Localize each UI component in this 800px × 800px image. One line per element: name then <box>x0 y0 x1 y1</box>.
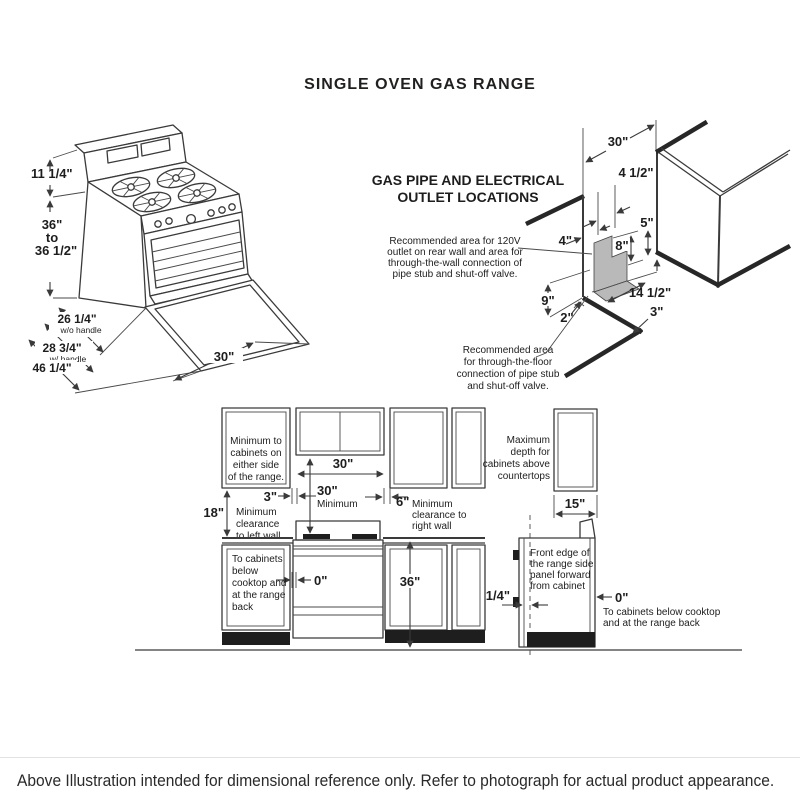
dim-30: 30" <box>608 134 629 149</box>
side-cab-note-line: Minimum to <box>230 436 282 447</box>
countertop-edge <box>658 152 720 196</box>
disclaimer-text: Above Illustration intended for dimensio… <box>17 771 740 791</box>
below-note-line: cooktop and <box>232 578 287 589</box>
footer-divider <box>0 757 800 758</box>
right-wall-note-line: right wall <box>412 521 451 532</box>
floor-edge-left <box>585 299 640 331</box>
left-wall-note-line: to left wall <box>236 531 280 542</box>
floor-note-line: for through-the-floor <box>464 357 553 368</box>
back-note-line: and at the range back <box>603 618 701 629</box>
dim-9: 9" <box>541 293 554 308</box>
dim-min-vertical-label: Minimum <box>317 499 358 510</box>
dim-depth-w-handle: 28 3/4" <box>42 341 81 355</box>
front-edge-note-line: panel forward <box>530 570 591 581</box>
toe-kick-side <box>527 632 595 647</box>
max-depth-note-line: cabinets above <box>483 459 551 470</box>
floor-note-line: and shut-off valve. <box>467 381 549 392</box>
wall-note-line: pipe stub and shut-off valve. <box>393 269 518 280</box>
front-edge-note-line: from cabinet <box>530 581 585 592</box>
cabinet-front-right-edge <box>718 196 720 285</box>
dim-depth-door-open: 46 1/4" <box>32 361 71 375</box>
dim-depth-wo-handle-note: w/o handle <box>59 325 101 335</box>
side-cab-note-line: cabinets on <box>230 448 281 459</box>
front-edge-note-line: Front edge of <box>530 548 590 559</box>
wall-note-line: Recommended area for 120V <box>389 236 521 247</box>
side-view: Maximum depth for cabinets above counter… <box>483 409 721 658</box>
floor-note-line: connection of pipe stub <box>457 369 560 380</box>
gas-dimensions: 30" 4 1/2" 4" 8" 5" <box>541 125 671 333</box>
dim-height-max: 36 1/2" <box>35 243 77 258</box>
below-note-line: back <box>232 602 254 613</box>
range-front-view <box>293 540 383 638</box>
dim-depth-wo-handle: 26 1/4" <box>57 312 96 326</box>
spec-sheet-page: SINGLE OVEN GAS RANGE <box>0 0 800 800</box>
burner-bar <box>303 534 330 539</box>
dim-5: 5" <box>640 215 653 230</box>
below-note-line: below <box>232 566 259 577</box>
range-isometric-drawing: 11 1/4" 36" to 36 1/2" 26 1/4" w/o handl… <box>15 112 325 402</box>
dim-right-gap: 6" <box>396 494 409 509</box>
upper-cabinet-side-view <box>554 409 597 491</box>
cabinet-clearance-drawing: Minimum to cabinets on either side of th… <box>130 400 745 665</box>
side-cab-note-line: of the range. <box>228 472 284 483</box>
dim-range-width: 30" <box>214 349 235 364</box>
dim-3: 3" <box>650 304 663 319</box>
dim-min-vertical: 30" <box>317 483 338 498</box>
dim-backsplash-height: 11 1/4" <box>31 166 73 181</box>
gas-title-line2: OUTLET LOCATIONS <box>397 189 538 205</box>
gas-pipe-outlet-drawing: GAS PIPE AND ELECTRICAL OUTLET LOCATIONS <box>360 115 800 405</box>
countertop-right-edge <box>720 154 788 196</box>
dim-zero-back: 0" <box>615 590 628 605</box>
right-wall-note-line: clearance to <box>412 510 467 521</box>
dim-14-5: 14 1/2" <box>629 285 671 300</box>
below-note-line: at the range <box>232 590 286 601</box>
left-wall-note-line: clearance <box>236 519 280 530</box>
range-artwork <box>75 125 309 371</box>
door-handle-side <box>513 550 519 560</box>
dim-4-5: 4 1/2" <box>618 165 653 180</box>
cabinet-top-back-edge <box>658 123 705 151</box>
dim-opening-width: 30" <box>333 456 354 471</box>
gas-title-line1: GAS PIPE AND ELECTRICAL <box>372 172 565 188</box>
right-wall-note-line: Minimum <box>412 499 453 510</box>
upper-cabinet-far-right <box>452 408 485 488</box>
side-backguard <box>580 519 595 538</box>
dim-8: 8" <box>615 238 628 253</box>
max-depth-note-line: depth for <box>511 447 551 458</box>
countertop-right-edge2 <box>723 150 790 192</box>
dim-zero-front: 0" <box>314 573 327 588</box>
left-wall-note-line: Minimum <box>236 507 277 518</box>
toe-kick <box>222 632 290 645</box>
dim-counter-height: 36" <box>400 574 421 589</box>
dim-left-gap: 3" <box>264 489 277 504</box>
cabinet-bottom-right-edge <box>718 247 788 285</box>
dim-4: 4" <box>559 233 572 248</box>
front-edge-note-line: the range side <box>530 559 594 570</box>
side-cab-note-line: either side <box>233 460 280 471</box>
burner-bar <box>352 534 377 539</box>
below-note-line: To cabinets <box>232 554 283 565</box>
gas-diagram-title: GAS PIPE AND ELECTRICAL OUTLET LOCATIONS <box>372 172 565 205</box>
wall-note-line: through-the-wall connection of <box>388 258 522 269</box>
dim-quarter: 1/4" <box>486 588 510 603</box>
cabinet-bottom-left-edge <box>658 253 718 285</box>
upper-cabinet-right <box>390 408 447 488</box>
back-note-line: To cabinets below cooktop <box>603 607 721 618</box>
countertop-edge2 <box>661 148 723 192</box>
dim-cab-depth: 15" <box>565 496 586 511</box>
floor-edge-front <box>567 331 640 375</box>
dim-side-clearance: 18" <box>203 505 224 520</box>
max-depth-note-line: countertops <box>498 471 550 482</box>
max-depth-note-line: Maximum <box>507 435 550 446</box>
page-title: SINGLE OVEN GAS RANGE <box>100 76 740 94</box>
wall-note-line: outlet on rear wall and area for <box>387 247 523 258</box>
toe-kick <box>385 630 485 643</box>
floor-note-line: Recommended area <box>463 345 554 356</box>
